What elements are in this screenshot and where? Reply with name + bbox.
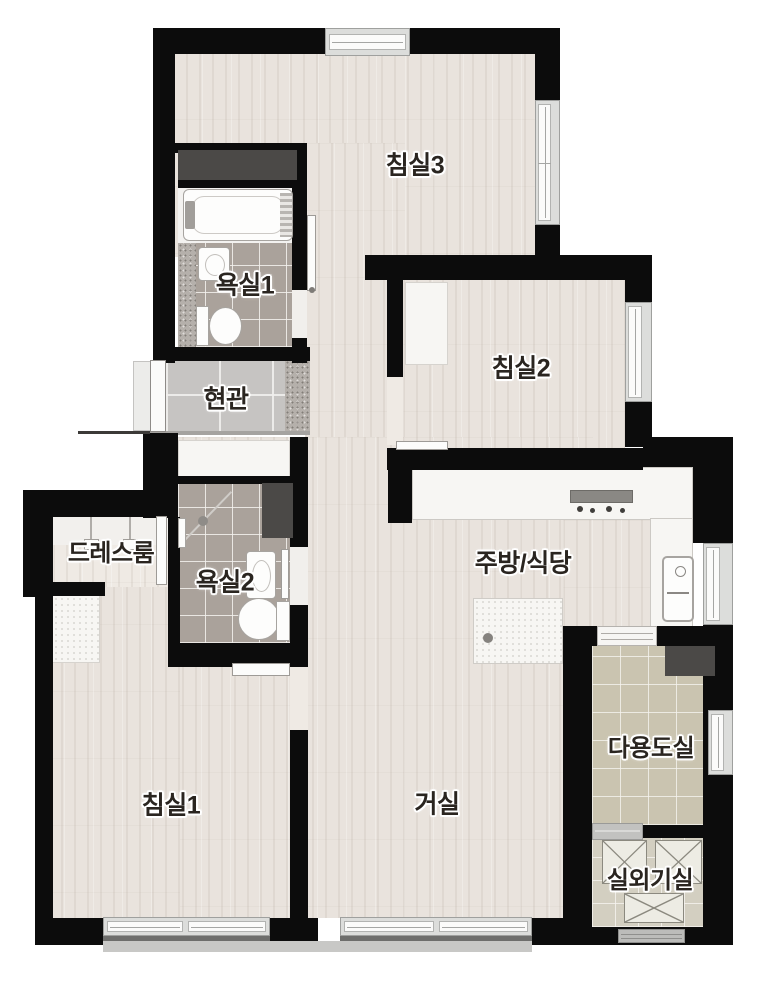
shower-fixture xyxy=(178,518,186,548)
utility-door xyxy=(597,626,657,646)
cooktop-burner xyxy=(590,508,595,513)
bedroom1-closet xyxy=(52,595,100,663)
bedroom2-closet xyxy=(405,282,448,365)
room-label-kitchen: 주방/식당 xyxy=(475,552,571,577)
wall xyxy=(693,437,733,543)
wall xyxy=(178,180,295,188)
cooktop-hood xyxy=(570,490,633,503)
dining-right-floor xyxy=(563,520,657,640)
room-label-bedroom2: 침실2 xyxy=(492,357,550,382)
kitchen-counter xyxy=(412,467,693,520)
bathroom1-door-opening xyxy=(292,290,307,338)
island-sink-drain xyxy=(483,633,493,643)
bedroom1-bottom-window xyxy=(103,917,270,936)
bathroom1-door-leaf xyxy=(307,215,316,291)
livingroom-bottom-window xyxy=(340,917,532,936)
shower-head-icon xyxy=(198,516,208,526)
wall xyxy=(143,433,178,518)
dressroom-side-panel xyxy=(156,516,167,585)
wall xyxy=(53,582,105,596)
wall xyxy=(643,825,717,838)
bedroom2-door-opening xyxy=(387,377,403,445)
entrance-closet xyxy=(178,440,290,477)
wall xyxy=(35,595,53,945)
room-label-utility: 다용도실 xyxy=(608,737,694,761)
bathroom2-door-opening xyxy=(290,547,308,605)
bedroom1-door-opening xyxy=(290,667,308,730)
bathtub xyxy=(183,189,293,241)
utility-cabinet xyxy=(665,646,715,676)
bedroom2-right-window xyxy=(625,302,652,402)
bathroom1-cabinet xyxy=(178,150,297,180)
wall xyxy=(563,626,597,646)
room-label-bathroom1: 욕실1 xyxy=(216,274,274,299)
hanger-rod xyxy=(129,517,131,541)
floorplan-canvas: 침실3 욕실1 현관 침실2 드레스룸 욕실2 주방/식당 침실1 거실 다용도… xyxy=(0,0,760,982)
wall xyxy=(532,918,592,945)
bedroom2-door-leaf xyxy=(396,441,448,450)
bedroom3-right-window xyxy=(535,100,560,225)
exterior-landing-line xyxy=(78,431,150,434)
wall xyxy=(35,918,103,945)
utility-right-window xyxy=(708,710,733,775)
bathroom1-granite-strip xyxy=(178,243,196,347)
wall xyxy=(153,28,325,54)
bathroom1-toilet-tank xyxy=(196,306,209,346)
bathroom1-door-knob xyxy=(309,287,315,293)
cooktop-burner xyxy=(577,506,583,512)
wall xyxy=(290,605,308,667)
refrigerator xyxy=(662,556,694,622)
bathroom2-door-leaf xyxy=(281,549,289,599)
front-door xyxy=(150,360,166,432)
outdoor-unit-door xyxy=(592,823,643,840)
room-label-dressroom: 드레스룸 xyxy=(68,542,154,566)
bathroom2-toilet-bowl xyxy=(238,598,280,640)
window-sill xyxy=(103,941,318,952)
room-label-living: 거실 xyxy=(414,793,459,818)
bedroom1-door-leaf xyxy=(232,663,290,676)
room-label-outdoor: 실외기실 xyxy=(607,869,693,893)
wall xyxy=(625,277,652,302)
cooktop-burner xyxy=(620,508,625,513)
wall xyxy=(387,448,643,470)
bathtub-faucet xyxy=(185,201,195,229)
room-label-bedroom1: 침실1 xyxy=(142,794,200,819)
wall xyxy=(23,490,53,597)
kitchen-right-window xyxy=(703,543,733,625)
wall xyxy=(387,270,403,377)
wall xyxy=(657,626,717,646)
room-label-bedroom3: 침실3 xyxy=(386,154,444,179)
ac-outdoor-unit xyxy=(624,893,684,923)
wall xyxy=(365,255,652,280)
wall xyxy=(153,347,310,361)
room-label-entrance: 현관 xyxy=(203,388,248,413)
cooktop-burner xyxy=(606,506,612,512)
window-sill xyxy=(318,941,532,952)
wall xyxy=(153,28,175,363)
bathroom2-cabinet xyxy=(262,483,293,538)
hanger-rod xyxy=(90,517,92,541)
wall xyxy=(290,730,308,926)
wall xyxy=(535,28,560,103)
bathroom2-toilet-tank xyxy=(276,601,290,641)
entrance-granite-strip xyxy=(285,360,310,433)
bathroom1-toilet-bowl xyxy=(209,307,242,345)
wall xyxy=(563,628,592,945)
outdoor-unit-louver xyxy=(618,929,685,943)
bathtub-towel-rack xyxy=(280,193,292,237)
wall xyxy=(388,470,412,523)
room-label-bathroom2: 욕실2 xyxy=(196,571,254,596)
kitchen-island xyxy=(473,598,563,664)
bedroom3-top-window xyxy=(325,28,410,56)
